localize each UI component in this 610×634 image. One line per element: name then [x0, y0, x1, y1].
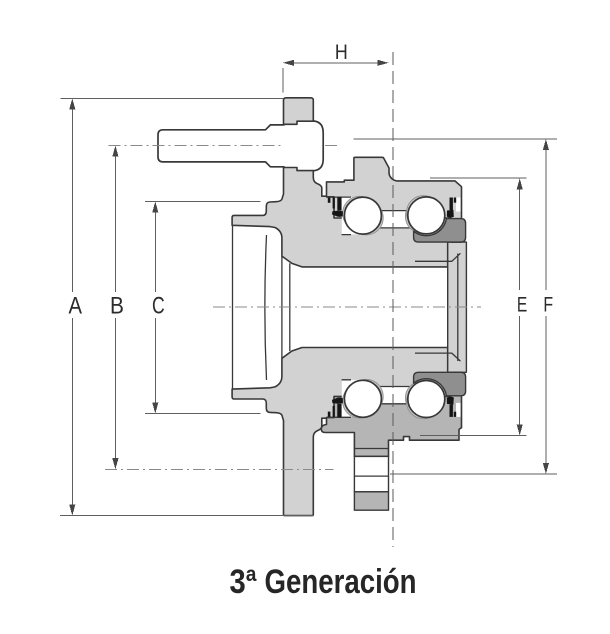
- svg-text:Generación: Generación: [265, 563, 417, 601]
- svg-text:C: C: [152, 293, 165, 320]
- svg-text:A: A: [68, 293, 82, 320]
- svg-text:B: B: [110, 293, 124, 320]
- svg-text:3ª: 3ª: [230, 563, 257, 601]
- svg-text:E: E: [517, 293, 527, 317]
- svg-text:F: F: [543, 293, 553, 317]
- svg-text:H: H: [335, 40, 348, 64]
